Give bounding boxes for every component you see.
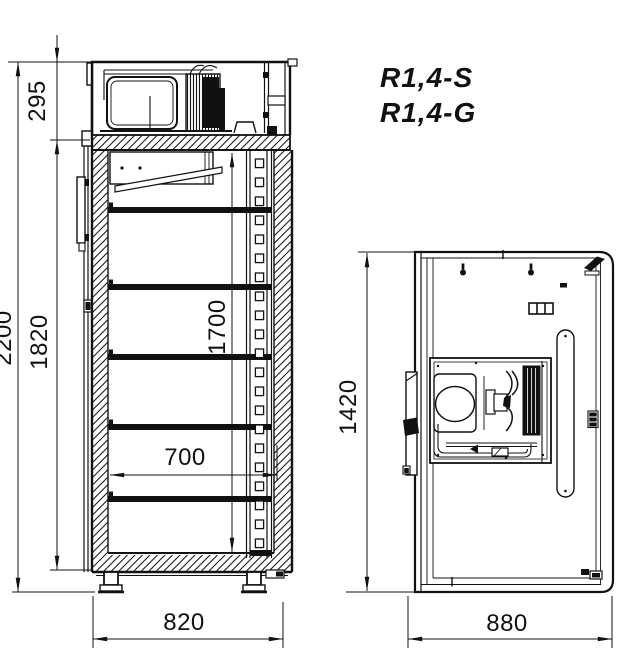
technical-drawing: R1,4-S R1,4-G 2200 1820 295 1700 700 820… <box>0 0 628 660</box>
dim-width: 880 <box>467 612 547 636</box>
dim-interior-height: 1700 <box>206 287 230 367</box>
condensing-unit <box>430 358 551 463</box>
door-lock <box>588 411 598 428</box>
dim-interior-width: 700 <box>145 446 225 470</box>
feet <box>98 570 284 592</box>
air-slot <box>557 330 574 497</box>
evaporator <box>110 152 222 192</box>
door-handle <box>77 177 85 243</box>
drawing-linework <box>0 0 628 660</box>
dim-overall-height: 2200 <box>0 298 16 378</box>
side-hinge-bar <box>403 372 419 475</box>
dim-depth: 1420 <box>337 367 361 447</box>
terminal-block <box>529 303 553 314</box>
machine-compartment <box>87 59 297 135</box>
top-view <box>346 250 613 648</box>
model-label-g: R1,4-G <box>380 97 476 129</box>
fan <box>434 374 476 432</box>
dim-body-height: 1820 <box>28 302 52 382</box>
top-insulation <box>92 135 290 150</box>
dim-machine-compartment-height: 295 <box>26 61 50 141</box>
model-label-s: R1,4-S <box>380 62 473 94</box>
door-and-handle <box>77 131 92 572</box>
dim-overall-width: 820 <box>144 611 224 635</box>
